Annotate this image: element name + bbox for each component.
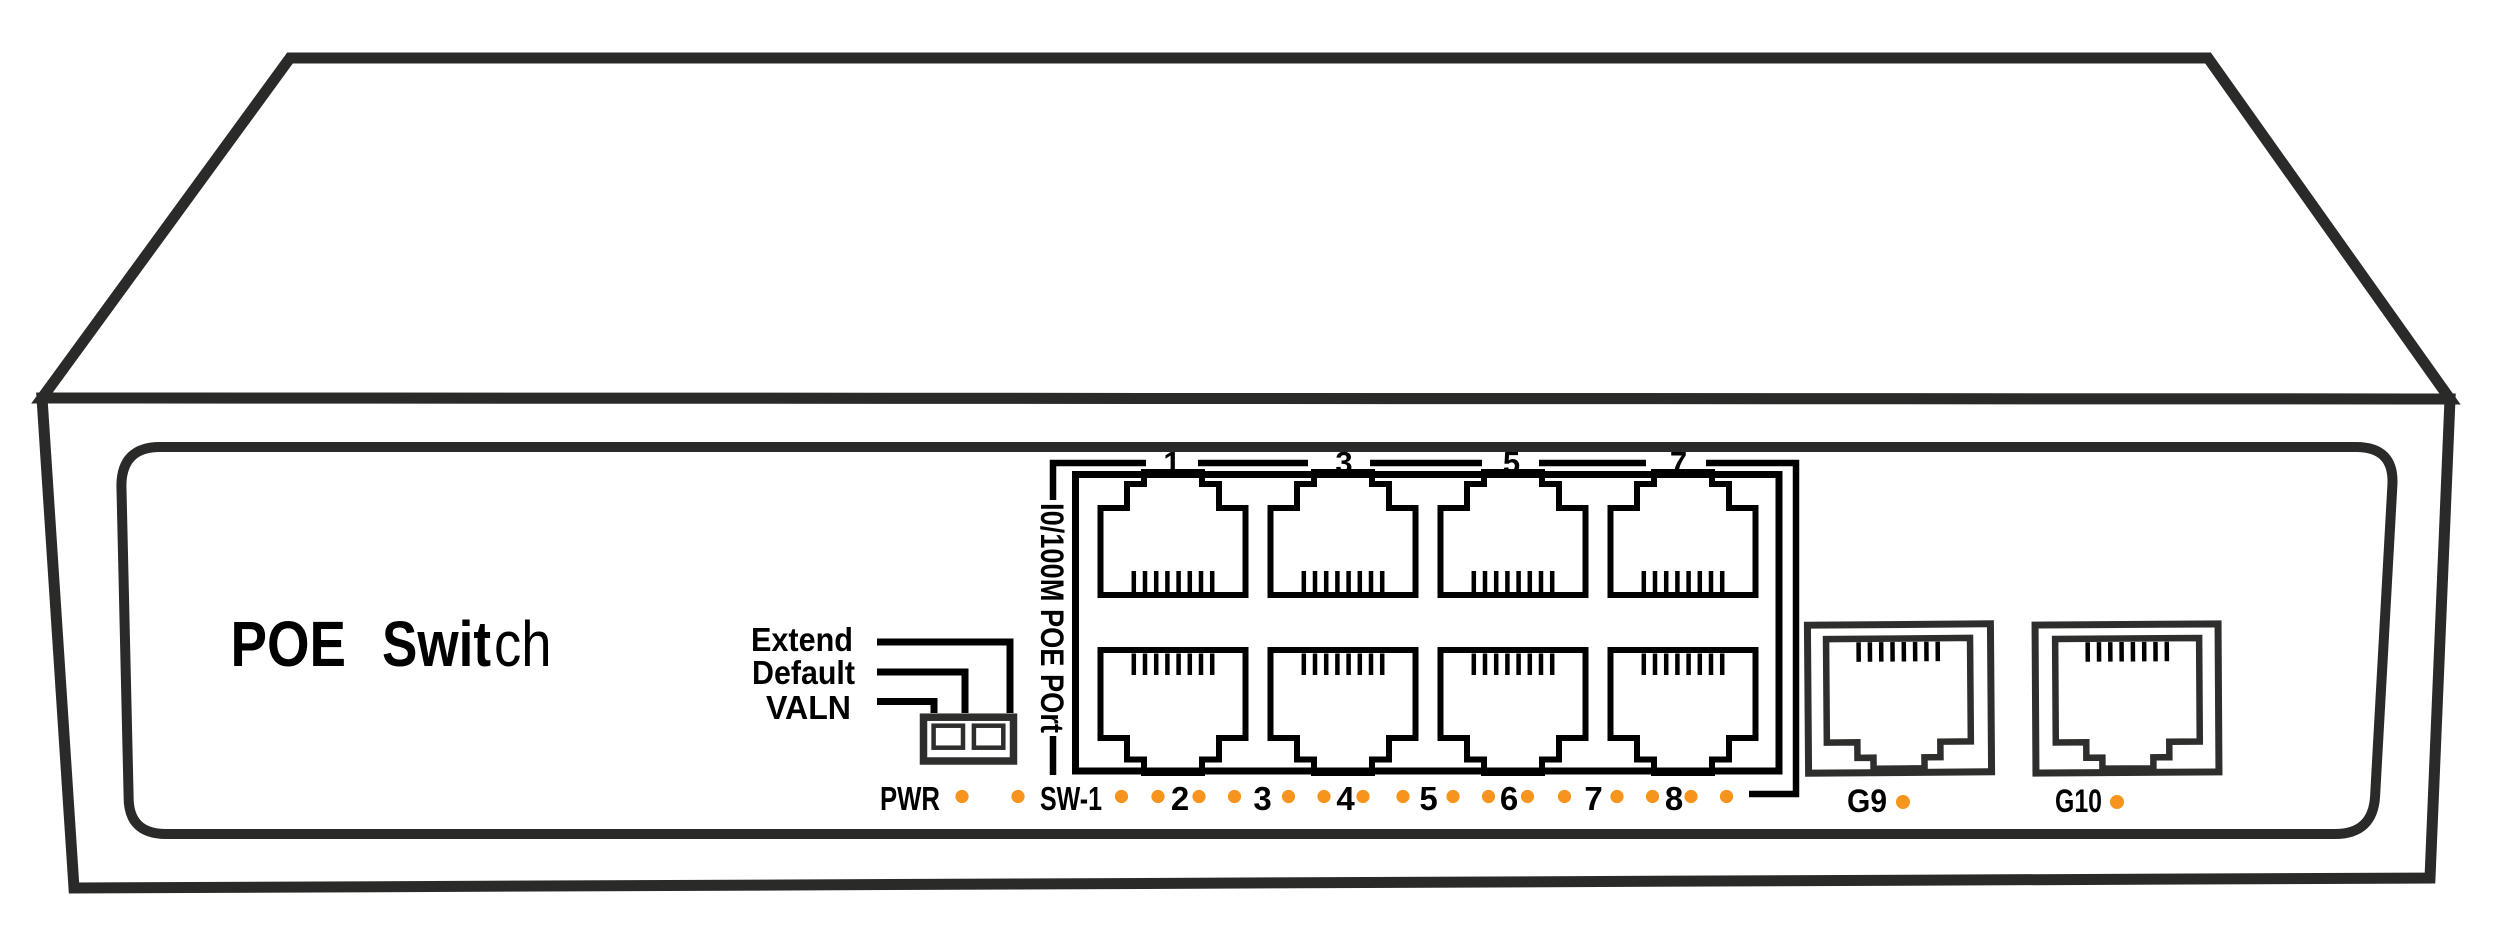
svg-text:VALN: VALN: [766, 689, 851, 726]
svg-text:7: 7: [1584, 780, 1602, 817]
svg-text:2: 2: [1171, 780, 1189, 817]
svg-text:SW-1: SW-1: [1040, 780, 1102, 817]
svg-text:7: 7: [1670, 445, 1687, 480]
svg-text:3: 3: [1335, 445, 1352, 480]
svg-text:8: 8: [1665, 780, 1683, 817]
svg-text:5: 5: [1419, 780, 1437, 817]
svg-text:5: 5: [1503, 445, 1520, 480]
svg-text:1: 1: [1163, 445, 1180, 480]
svg-text:ch: ch: [494, 608, 552, 680]
svg-text:I0/100M POE POrt: I0/100M POE POrt: [1034, 503, 1070, 733]
svg-text:3: 3: [1253, 780, 1271, 817]
svg-text:Extend: Extend: [751, 621, 853, 658]
svg-text:6: 6: [1500, 780, 1518, 817]
svg-text:4: 4: [1336, 780, 1355, 817]
svg-text:G10: G10: [2055, 783, 2102, 819]
svg-text:G9: G9: [1847, 783, 1887, 819]
svg-text:Swit: Swit: [382, 608, 491, 680]
svg-text:Default: Default: [752, 654, 855, 691]
svg-text:POE: POE: [231, 608, 347, 680]
svg-text:PWR: PWR: [880, 780, 940, 817]
